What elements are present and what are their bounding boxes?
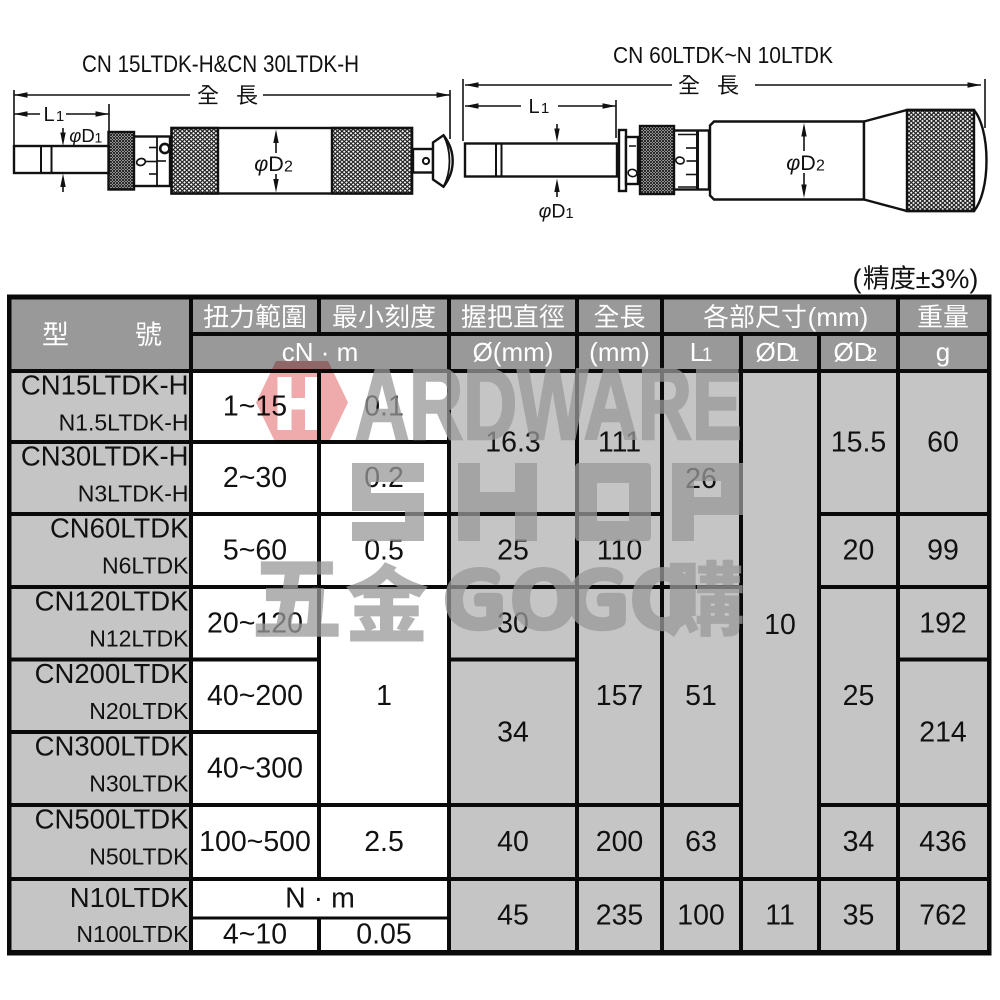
svg-text:40~300: 40~300 bbox=[207, 753, 303, 785]
svg-text:L: L bbox=[528, 96, 539, 118]
svg-text:2: 2 bbox=[284, 159, 293, 176]
svg-text:34: 34 bbox=[497, 716, 529, 748]
svg-text:2: 2 bbox=[867, 345, 878, 366]
svg-text:φD: φD bbox=[254, 152, 284, 176]
svg-text:1: 1 bbox=[95, 130, 103, 146]
svg-text:0.05: 0.05 bbox=[356, 919, 411, 951]
svg-text:200: 200 bbox=[596, 826, 644, 858]
svg-text:(mm): (mm) bbox=[808, 302, 869, 332]
svg-text:±3%): ±3%) bbox=[916, 264, 979, 294]
svg-text:g: g bbox=[936, 337, 950, 367]
svg-text:ARDWARE: ARDWARE bbox=[355, 348, 742, 461]
svg-text:1: 1 bbox=[541, 100, 549, 117]
svg-text:436: 436 bbox=[919, 826, 967, 858]
svg-text:1: 1 bbox=[566, 206, 574, 222]
svg-text:99: 99 bbox=[927, 535, 959, 567]
svg-text:214: 214 bbox=[919, 716, 967, 748]
svg-text:1: 1 bbox=[376, 680, 392, 712]
svg-text:157: 157 bbox=[596, 680, 644, 712]
svg-text:762: 762 bbox=[919, 900, 967, 932]
svg-text:CN200LTDK: CN200LTDK bbox=[35, 658, 190, 689]
svg-text:CN60LTDK: CN60LTDK bbox=[50, 513, 189, 544]
svg-text:192: 192 bbox=[919, 607, 967, 639]
svg-text:N6LTDK: N6LTDK bbox=[102, 553, 189, 579]
svg-text:N1.5LTDK-H: N1.5LTDK-H bbox=[59, 410, 189, 436]
svg-text:2~30: 2~30 bbox=[223, 462, 287, 494]
svg-text:φD: φD bbox=[69, 125, 94, 146]
svg-text:CN 15LTDK-H&CN 30LTDK-H: CN 15LTDK-H&CN 30LTDK-H bbox=[82, 51, 359, 78]
svg-text:N100LTDK: N100LTDK bbox=[76, 921, 189, 947]
svg-text:25: 25 bbox=[843, 680, 875, 712]
svg-text:φD: φD bbox=[539, 201, 566, 223]
svg-text:34: 34 bbox=[843, 826, 875, 858]
svg-text:15.5: 15.5 bbox=[831, 427, 886, 459]
svg-text:N3LTDK-H: N3LTDK-H bbox=[78, 481, 189, 507]
svg-text:L: L bbox=[43, 104, 54, 126]
svg-text:φD: φD bbox=[786, 151, 816, 175]
svg-text:2: 2 bbox=[816, 158, 825, 175]
svg-text:CN120LTDK: CN120LTDK bbox=[35, 586, 190, 617]
svg-text:100: 100 bbox=[677, 900, 725, 932]
svg-text:N12LTDK: N12LTDK bbox=[89, 626, 189, 652]
svg-text:(: ( bbox=[853, 264, 862, 294]
svg-text:35: 35 bbox=[843, 900, 875, 932]
svg-text:100~500: 100~500 bbox=[199, 826, 311, 858]
svg-text:N10LTDK: N10LTDK bbox=[70, 882, 189, 913]
svg-text:40: 40 bbox=[497, 826, 529, 858]
svg-text:45: 45 bbox=[497, 900, 529, 932]
svg-text:10: 10 bbox=[764, 609, 796, 641]
svg-text:63: 63 bbox=[685, 826, 717, 858]
svg-text:11: 11 bbox=[765, 900, 795, 932]
svg-text:N20LTDK: N20LTDK bbox=[89, 698, 189, 724]
svg-text:CN30LTDK-H: CN30LTDK-H bbox=[21, 441, 189, 472]
svg-text:1: 1 bbox=[56, 108, 64, 125]
svg-text:CN500LTDK: CN500LTDK bbox=[35, 804, 190, 835]
svg-text:2.5: 2.5 bbox=[364, 826, 404, 858]
svg-text:CN 60LTDK~N 10LTDK: CN 60LTDK~N 10LTDK bbox=[613, 42, 834, 68]
svg-text:40~200: 40~200 bbox=[207, 680, 303, 712]
svg-text:CN300LTDK: CN300LTDK bbox=[35, 731, 190, 762]
svg-text:N30LTDK: N30LTDK bbox=[89, 771, 189, 797]
svg-text:CN15LTDK-H: CN15LTDK-H bbox=[21, 370, 189, 401]
svg-text:60: 60 bbox=[927, 427, 959, 459]
svg-text:N · m: N · m bbox=[285, 883, 355, 915]
svg-text:4~10: 4~10 bbox=[223, 919, 287, 951]
svg-text:1: 1 bbox=[789, 345, 800, 366]
svg-text:N50LTDK: N50LTDK bbox=[89, 844, 189, 870]
svg-text:235: 235 bbox=[596, 900, 644, 932]
svg-text:20: 20 bbox=[843, 535, 875, 567]
svg-text:51: 51 bbox=[685, 680, 717, 712]
